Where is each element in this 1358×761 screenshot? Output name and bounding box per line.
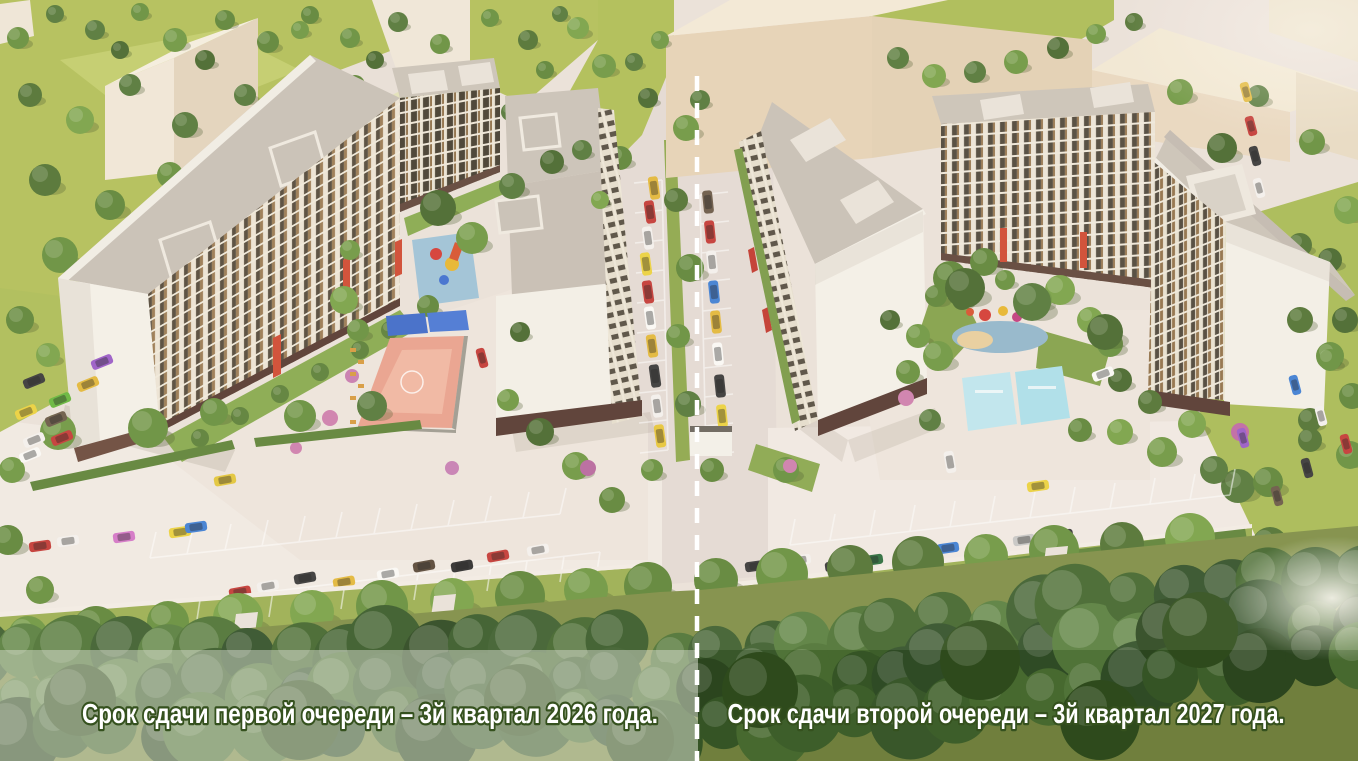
svg-text:Срок сдачи первой очереди – 3й: Срок сдачи первой очереди – 3й квартал 2…: [82, 698, 658, 729]
svg-text:Срок сдачи второй очереди – 3й: Срок сдачи второй очереди – 3й квартал 2…: [728, 698, 1285, 729]
